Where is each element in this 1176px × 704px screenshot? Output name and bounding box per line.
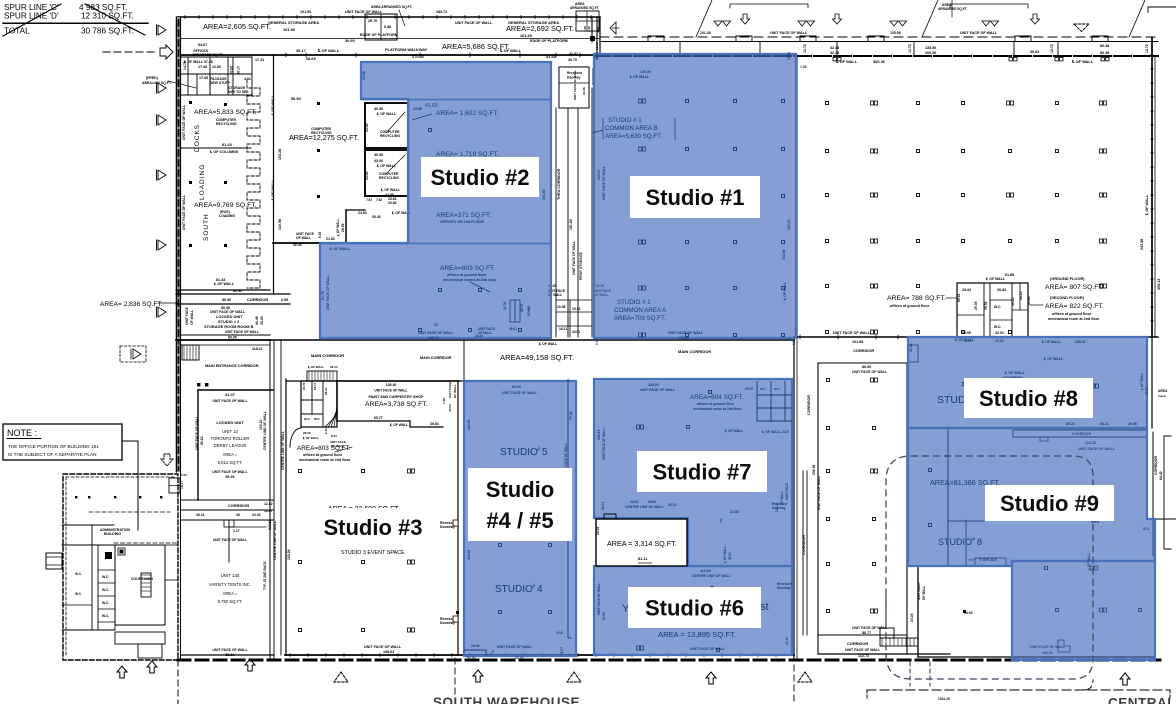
- svg-text:℄ OF WALL: ℄ OF WALL: [629, 74, 650, 79]
- svg-text:9,750 SQ.FT.: 9,750 SQ.FT.: [218, 599, 243, 604]
- svg-text:65.21: 65.21: [1100, 422, 1109, 426]
- svg-text:24.63: 24.63: [358, 211, 367, 215]
- svg-text:UNIT FACE OF WALL: UNIT FACE OF WALL: [195, 416, 199, 450]
- svg-text:TORONTO ROLLER: TORONTO ROLLER: [211, 436, 250, 441]
- svg-text:33.82: 33.82: [388, 201, 397, 205]
- svg-text:40.04: 40.04: [448, 404, 452, 412]
- svg-text:8: 8: [977, 537, 982, 547]
- svg-text:23.10: 23.10: [785, 637, 789, 645]
- svg-text:34.34: 34.34: [475, 334, 483, 338]
- svg-text:UNIT FACE OF WALL: UNIT FACE OF WALL: [817, 476, 821, 510]
- svg-text:AREA= 807 SQ.FT.: AREA= 807 SQ.FT.: [1045, 284, 1104, 291]
- svg-text:236.36: 236.36: [812, 465, 816, 475]
- svg-text:36.83: 36.83: [430, 422, 439, 426]
- svg-text:NEW STUFF: NEW STUFF: [210, 81, 230, 85]
- svg-text:64.42: 64.42: [1159, 471, 1163, 480]
- svg-text:103.27: 103.27: [597, 170, 601, 180]
- svg-text:15.17: 15.17: [180, 481, 184, 489]
- svg-text:305.13: 305.13: [1157, 279, 1161, 290]
- svg-text:UNIT FACE OF WALL: UNIT FACE OF WALL: [418, 331, 454, 335]
- svg-text:Studio #8: Studio #8: [979, 386, 1078, 411]
- svg-text:DERBY LEAGUE: DERBY LEAGUE: [214, 443, 247, 448]
- svg-text:12.28: 12.28: [595, 52, 599, 60]
- svg-text:7.28: 7.28: [442, 398, 446, 404]
- svg-text:PLATFORM WALKWAY: PLATFORM WALKWAY: [385, 47, 428, 52]
- svg-text:mech.: mech.: [1158, 394, 1167, 398]
- svg-text:32.33: 32.33: [830, 51, 839, 55]
- svg-text:UNIT FACE OF WALL: UNIT FACE OF WALL: [374, 389, 407, 393]
- svg-text:UNIT FACE OF WALL: UNIT FACE OF WALL: [345, 10, 383, 14]
- svg-text:UNIT FACE OF WALL: UNIT FACE OF WALL: [852, 370, 888, 374]
- svg-text:233.52: 233.52: [268, 520, 272, 530]
- svg-text:UNIT FACE: UNIT FACE: [185, 306, 189, 325]
- svg-text:50.40: 50.40: [372, 215, 381, 219]
- svg-text:CENTRE LINE OF WALL: CENTRE LINE OF WALL: [273, 521, 277, 560]
- svg-text:℄ OF WALL: ℄ OF WALL: [538, 342, 557, 346]
- svg-text:45.17: 45.17: [296, 48, 306, 53]
- svg-text:43.50: 43.50: [413, 107, 422, 111]
- svg-text:AREA=402 SQ.FT.: AREA=402 SQ.FT.: [142, 81, 172, 85]
- svg-text:℄ OF COLUMNS: ℄ OF COLUMNS: [209, 149, 239, 154]
- svg-text:℄ OF WALL: ℄ OF WALL: [1140, 373, 1144, 391]
- svg-text:AREA = 3,314 SQ.FT.: AREA = 3,314 SQ.FT.: [607, 539, 677, 548]
- svg-text:UNIT FACE OF WALL: UNIT FACE OF WALL: [573, 70, 577, 100]
- svg-text:31.98: 31.98: [582, 87, 586, 95]
- svg-text:101.88: 101.88: [852, 340, 863, 344]
- svg-text:℄ OF WALL: ℄ OF WALL: [329, 246, 351, 251]
- svg-text:21.83: 21.83: [326, 237, 335, 241]
- svg-text:CENTRAL: CENTRAL: [1108, 696, 1176, 704]
- svg-text:UNIT FACE OF WALL: UNIT FACE OF WALL: [213, 538, 247, 542]
- svg-text:25.70: 25.70: [368, 19, 377, 23]
- svg-text:9.16: 9.16: [556, 631, 563, 635]
- svg-text:GENERAL STORAGE AREA: GENERAL STORAGE AREA: [268, 20, 319, 25]
- svg-text:UNIT 13: UNIT 13: [222, 429, 238, 434]
- svg-text:23.03: 23.03: [910, 613, 914, 622]
- svg-text:45.80: 45.80: [1027, 296, 1031, 305]
- svg-text:AREA=803 SQ.FT.: AREA=803 SQ.FT.: [440, 265, 495, 272]
- svg-text:12.28: 12.28: [787, 52, 791, 60]
- svg-text:NOTE :: NOTE :: [7, 428, 37, 438]
- svg-text:40.50: 40.50: [374, 153, 383, 157]
- svg-text:5: 5: [542, 447, 548, 458]
- svg-text:112.72: 112.72: [858, 654, 869, 658]
- svg-text:℄ OF WALL: ℄ OF WALL: [380, 187, 401, 192]
- svg-text:℄ OF WALL: ℄ OF WALL: [270, 94, 275, 116]
- svg-text:EDGE OF PLATFORM: EDGE OF PLATFORM: [530, 39, 568, 43]
- svg-text:101.90: 101.90: [283, 27, 295, 32]
- svg-text:UNIT FACE OF WALL: UNIT FACE OF WALL: [668, 331, 704, 335]
- svg-text:MAIN ENTRANCE CORRIDOR: MAIN ENTRANCE CORRIDOR: [205, 364, 259, 368]
- svg-text:46.01: 46.01: [509, 327, 517, 331]
- svg-text:ARRANGED SQ.FT.: ARRANGED SQ.FT.: [938, 7, 967, 11]
- svg-text:7.62: 7.62: [376, 198, 382, 202]
- svg-text:183.72: 183.72: [436, 10, 447, 14]
- svg-text:105.41: 105.41: [1075, 340, 1086, 344]
- svg-text:(FRED): (FRED): [146, 76, 158, 80]
- svg-text:STUDIO: STUDIO: [500, 447, 538, 458]
- svg-text:8.73: 8.73: [331, 434, 337, 438]
- svg-text:28.10: 28.10: [324, 387, 328, 395]
- svg-text:25.44: 25.44: [229, 66, 233, 75]
- svg-text:20.83: 20.83: [997, 288, 1006, 292]
- svg-text:mechanical room at 2nd floor: mechanical room at 2nd floor: [1048, 317, 1100, 321]
- svg-text:158.63: 158.63: [383, 650, 394, 654]
- svg-text:UNIT FACE: UNIT FACE: [785, 483, 789, 500]
- svg-text:offices at ground floor: offices at ground floor: [303, 453, 343, 457]
- svg-text:MAIN CORRIDOR: MAIN CORRIDOR: [420, 356, 452, 360]
- svg-text:UNIT FACE OF WALL: UNIT FACE OF WALL: [770, 31, 808, 35]
- svg-text:OF WALL: OF WALL: [922, 586, 926, 600]
- svg-text:Doorway: Doorway: [772, 506, 786, 510]
- svg-text:23.02: 23.02: [962, 288, 971, 292]
- svg-text:17.08: 17.08: [198, 65, 207, 69]
- svg-text:Studio #2: Studio #2: [430, 165, 529, 190]
- svg-text:28.69: 28.69: [306, 56, 317, 61]
- svg-text:mechanical rooms at 2nd floor: mechanical rooms at 2nd floor: [443, 278, 497, 282]
- svg-text:25.17: 25.17: [313, 382, 317, 390]
- svg-text:32.02: 32.02: [252, 513, 261, 517]
- svg-text:UNIT FACE OF WALL: UNIT FACE OF WALL: [182, 194, 186, 230]
- svg-text:℄ OF WALL: ℄ OF WALL: [302, 436, 319, 440]
- svg-text:AREA=2,692 SQ.FT.: AREA=2,692 SQ.FT.: [506, 24, 574, 33]
- svg-text:THE OFFICE PORTION OF BUIL: THE OFFICE PORTION OF BUILDING 151: [8, 444, 99, 449]
- svg-text:LOADING: LOADING: [219, 214, 235, 218]
- svg-text:103.10: 103.10: [259, 420, 263, 430]
- svg-text:UNIT FACE OF WALL: UNIT FACE OF WALL: [690, 647, 726, 651]
- svg-text:0.30: 0.30: [181, 473, 187, 477]
- svg-text:Studio #7: Studio #7: [652, 459, 751, 484]
- svg-text:110.98: 110.98: [278, 219, 282, 230]
- svg-text:mechanical room at 2nd floor: mechanical room at 2nd floor: [693, 407, 742, 411]
- svg-text:COMMON AREA A: COMMON AREA A: [614, 307, 667, 314]
- svg-text:PAINT AND CARPENTRY SHOP: PAINT AND CARPENTRY SHOP: [369, 395, 424, 399]
- svg-text:12.72: 12.72: [1050, 44, 1054, 53]
- svg-text:28.33: 28.33: [303, 431, 311, 435]
- svg-text:CORRIDOR: CORRIDOR: [807, 395, 811, 415]
- svg-text:OF WALL: OF WALL: [296, 236, 311, 240]
- svg-text:29.35: 29.35: [974, 301, 978, 310]
- svg-text:W.C.: W.C.: [75, 592, 82, 596]
- svg-text:UNIT FACE OF WALL: UNIT FACE OF WALL: [326, 276, 330, 310]
- svg-text:6.35: 6.35: [318, 232, 322, 238]
- svg-text:86.00: 86.00: [862, 365, 871, 369]
- svg-text:UNIT FACE: UNIT FACE: [448, 382, 452, 398]
- svg-text:UNIT FACE OF WALL: UNIT FACE OF WALL: [212, 470, 248, 474]
- svg-text:AREA= 2,836 SQ.FT.: AREA= 2,836 SQ.FT.: [100, 301, 163, 308]
- svg-text:33.05: 33.05: [962, 331, 971, 335]
- svg-text:SOUTH: SOUTH: [203, 213, 210, 241]
- svg-text:℄ OF WALL: ℄ OF WALL: [1144, 194, 1149, 216]
- svg-text:℄ OF WALL: ℄ OF WALL: [954, 337, 975, 342]
- svg-text:℄ OF WALL: ℄ OF WALL: [1004, 370, 1026, 375]
- svg-text:(SECOND FLOOR): (SECOND FLOOR): [1050, 295, 1085, 300]
- svg-text:103.28: 103.28: [287, 550, 291, 560]
- svg-text:AREA= 1,602 SQ.FT.: AREA= 1,602 SQ.FT.: [436, 110, 499, 117]
- svg-text:32.02: 32.02: [995, 331, 1004, 335]
- svg-text:0.35: 0.35: [595, 339, 599, 345]
- svg-text:17.31: 17.31: [255, 58, 264, 62]
- svg-text:32.33: 32.33: [830, 46, 839, 50]
- svg-text:19.96: 19.96: [557, 305, 566, 309]
- svg-text:15.09: 15.09: [471, 644, 480, 648]
- svg-text:mechanical room at 2nd floor: mechanical room at 2nd floor: [299, 458, 351, 462]
- svg-text:31.3: 31.3: [1143, 527, 1149, 531]
- svg-text:13.87: 13.87: [264, 509, 273, 513]
- svg-text:SPUR LINE 'D': SPUR LINE 'D': [4, 12, 59, 21]
- svg-text:36: 36: [236, 513, 240, 517]
- svg-text:12.72: 12.72: [1145, 44, 1149, 53]
- svg-text:RECYCLING: RECYCLING: [379, 176, 399, 180]
- svg-text:201.38: 201.38: [700, 31, 711, 35]
- svg-text:UNIT FACE OF WALL: UNIT FACE OF WALL: [212, 399, 248, 403]
- svg-text:W.C.: W.C.: [102, 588, 109, 592]
- svg-text:OFFICES ON 2nd FLOOR: OFFICES ON 2nd FLOOR: [440, 220, 484, 224]
- svg-text:4: 4: [537, 584, 543, 595]
- svg-text:AREA= 1,718 SQ.FT.: AREA= 1,718 SQ.FT.: [436, 151, 499, 158]
- svg-text:181.80: 181.80: [569, 219, 573, 230]
- svg-text:UNIT FACE OF WALL: UNIT FACE OF WALL: [502, 391, 538, 395]
- svg-text:℄ OF WALL: ℄ OF WALL: [270, 179, 275, 201]
- svg-text:12.80: 12.80: [212, 65, 221, 69]
- svg-text:1041.26: 1041.26: [938, 697, 950, 701]
- svg-text:SOUTH WAREHOUSE: SOUTH WAREHOUSE: [433, 695, 580, 704]
- svg-text:118.21: 118.21: [252, 347, 263, 351]
- svg-text:IS THE SUBJECT OF A SEPAR: IS THE SUBJECT OF A SEPARATE PLAN: [8, 452, 96, 457]
- svg-text:50.90: 50.90: [291, 96, 301, 101]
- svg-text:86.77: 86.77: [862, 631, 871, 635]
- svg-text:116.98: 116.98: [467, 550, 471, 560]
- svg-text:UNIT FACE OF WALL: UNIT FACE OF WALL: [212, 648, 248, 652]
- svg-text:43.06: 43.06: [374, 159, 383, 163]
- svg-text:101.90: 101.90: [300, 10, 311, 14]
- svg-text:28.70: 28.70: [520, 304, 524, 312]
- svg-text:38.91: 38.91: [728, 552, 732, 560]
- svg-text:33.00: 33.00: [515, 656, 524, 660]
- svg-text:28.43: 28.43: [330, 365, 338, 369]
- svg-text:80.90: 80.90: [222, 298, 231, 302]
- svg-text:CORRIDOR: CORRIDOR: [1154, 455, 1158, 475]
- svg-text:135.56: 135.56: [890, 31, 901, 35]
- svg-text:BUILDING: BUILDING: [104, 532, 121, 536]
- svg-text:36.04: 36.04: [601, 502, 605, 510]
- svg-text:℄ OF WALL: ℄ OF WALL: [985, 276, 1006, 281]
- svg-text:75.36: 75.36: [569, 411, 573, 420]
- svg-text:offices at ground floor: offices at ground floor: [1052, 312, 1092, 316]
- svg-text:(GROUND FLOOR): (GROUND FLOOR): [1050, 276, 1085, 281]
- svg-text:12.72: 12.72: [908, 44, 912, 53]
- svg-text:17.08: 17.08: [236, 66, 240, 75]
- svg-text:61.07: 61.07: [225, 392, 235, 397]
- svg-text:ARRANGED SQ.FT.: ARRANGED SQ.FT.: [570, 6, 599, 10]
- svg-text:RECYCLING: RECYCLING: [380, 134, 400, 138]
- svg-text:Studio #1: Studio #1: [645, 185, 744, 210]
- svg-text:LOADING: LOADING: [199, 164, 206, 200]
- svg-text:STUDIO # 1: STUDIO # 1: [617, 299, 651, 306]
- svg-text:STUDIO # 1: STUDIO # 1: [608, 117, 642, 124]
- svg-text:6,014 SQ.FT.: 6,014 SQ.FT.: [218, 460, 243, 465]
- svg-text:W.C.: W.C.: [102, 575, 109, 579]
- svg-text:CENTRE LINE OF WALL: CENTRE LINE OF WALL: [625, 505, 664, 509]
- svg-text:25.37: 25.37: [745, 387, 754, 391]
- svg-text:UNIT FACE OF WALL: UNIT FACE OF WALL: [225, 330, 259, 334]
- svg-text:UNIT FACE OF WALL: UNIT FACE OF WALL: [833, 331, 871, 335]
- svg-text:UNIT FACE OF WALL: UNIT FACE OF WALL: [597, 583, 601, 615]
- svg-text:UNIT 140: UNIT 140: [221, 573, 240, 578]
- svg-text:AREA=803 SQ.FT.: AREA=803 SQ.FT.: [297, 445, 351, 452]
- svg-text:160.73: 160.73: [428, 336, 439, 340]
- svg-text:300.36: 300.36: [873, 59, 886, 64]
- svg-text:34.01: 34.01: [572, 330, 580, 334]
- svg-text:7.67: 7.67: [366, 198, 372, 202]
- svg-text:40.35: 40.35: [293, 243, 302, 247]
- svg-text:65.77: 65.77: [374, 416, 383, 420]
- svg-text:AREA =: AREA =: [223, 452, 238, 457]
- svg-text:17.69: 17.69: [199, 76, 208, 80]
- svg-text:℄ OF WALL: ℄ OF WALL: [336, 219, 340, 237]
- svg-text:161.60: 161.60: [520, 33, 532, 38]
- svg-text:℄ OF WALL: ℄ OF WALL: [499, 48, 522, 53]
- svg-text:W.C.: W.C.: [760, 387, 767, 391]
- svg-text:20.70: 20.70: [302, 382, 306, 390]
- svg-text:80.90: 80.90: [233, 289, 242, 293]
- svg-text:STUDIO 3 EVENT SPACE: STUDIO 3 EVENT SPACE: [341, 550, 405, 556]
- svg-text:ARRANGED SQ.FT.: ARRANGED SQ.FT.: [192, 53, 223, 57]
- svg-text:CORRIDOR: CORRIDOR: [847, 641, 868, 646]
- svg-text:W.C.: W.C.: [304, 417, 311, 421]
- svg-text:113.00: 113.00: [700, 569, 711, 573]
- svg-text:21.33: 21.33: [909, 343, 913, 352]
- svg-text:STUDIO: STUDIO: [938, 537, 972, 547]
- svg-text:12.72: 12.72: [803, 44, 807, 53]
- svg-text:AREA= 788 SQ.FT.: AREA= 788 SQ.FT.: [887, 295, 946, 302]
- svg-text:1.17: 1.17: [233, 529, 240, 533]
- svg-text:63.00: 63.00: [512, 385, 521, 389]
- svg-text:℄ OF WALL: ℄ OF WALL: [1087, 553, 1091, 571]
- svg-text:55.39: 55.39: [225, 475, 234, 479]
- svg-text:W.C.: W.C.: [314, 417, 321, 421]
- svg-text:VARSITY TENTS INC.: VARSITY TENTS INC.: [209, 582, 251, 587]
- svg-text:232.89: 232.89: [782, 250, 786, 260]
- svg-text:st: st: [760, 601, 769, 613]
- svg-text:81.43: 81.43: [222, 142, 233, 147]
- svg-text:℄ OF WALL: ℄ OF WALL: [783, 282, 787, 301]
- svg-text:28.56: 28.56: [341, 223, 345, 232]
- svg-text:AREA=5,630 SQ.FT.: AREA=5,630 SQ.FT.: [605, 133, 662, 140]
- svg-text:UNIT FACE OF WALL: UNIT FACE OF WALL: [572, 241, 576, 275]
- svg-text:84.15: 84.15: [668, 503, 677, 507]
- svg-text:243.98: 243.98: [1140, 239, 1144, 250]
- svg-text:39.10: 39.10: [1011, 297, 1015, 306]
- svg-text:UNIT FACE OF WALL: UNIT FACE OF WALL: [602, 428, 606, 460]
- svg-text:℄ OF WALL: ℄ OF WALL: [835, 59, 858, 64]
- svg-text:16.21: 16.21: [559, 327, 567, 331]
- svg-text:28.10: 28.10: [1019, 291, 1023, 300]
- svg-text:RECYCLING: RECYCLING: [311, 131, 332, 135]
- svg-text:℄ OF WALL: ℄ OF WALL: [376, 111, 397, 116]
- svg-text:80.38: 80.38: [1100, 51, 1109, 55]
- svg-text:36.11: 36.11: [196, 513, 205, 517]
- svg-text:CORRIDOR: CORRIDOR: [247, 297, 268, 302]
- svg-text:STUDIO: STUDIO: [495, 584, 533, 595]
- svg-text:AREA= 822 SQ.FT.: AREA= 822 SQ.FT.: [1045, 303, 1104, 310]
- svg-text:14.75: 14.75: [183, 61, 187, 70]
- svg-text:THRU CORRIDOR: THRU CORRIDOR: [557, 168, 561, 200]
- svg-text:41.50: 41.50: [425, 103, 438, 109]
- svg-text:offices at ground floor: offices at ground floor: [447, 273, 487, 277]
- svg-text:℄ OF WALL: ℄ OF WALL: [389, 423, 408, 427]
- svg-text:W.C.: W.C.: [102, 601, 109, 605]
- svg-text:AREA =: AREA =: [223, 591, 238, 596]
- svg-text:77.31: 77.31: [1145, 387, 1149, 395]
- svg-text:122.00: 122.00: [467, 420, 471, 430]
- svg-text:AREA=371 SQ.FT.: AREA=371 SQ.FT.: [436, 212, 491, 219]
- svg-text:CORRIDOR: CORRIDOR: [228, 503, 249, 508]
- svg-text:Studio #9: Studio #9: [1000, 491, 1099, 516]
- svg-text:offices at ground floor: offices at ground floor: [890, 304, 930, 308]
- svg-text:81.79: 81.79: [321, 291, 325, 300]
- svg-text:80.24: 80.24: [200, 436, 204, 445]
- svg-text:AREA=3,738 SQ.FT.: AREA=3,738 SQ.FT.: [365, 401, 428, 408]
- svg-text:33.59: 33.59: [362, 71, 366, 80]
- svg-text:AREA=2,605 SQ.FT.: AREA=2,605 SQ.FT.: [203, 22, 271, 31]
- svg-text:LOCKED UNIT: LOCKED UNIT: [216, 420, 244, 425]
- svg-text:℄ OF WALL: ℄ OF WALL: [376, 163, 397, 168]
- svg-text:85.21: 85.21: [1066, 422, 1075, 426]
- svg-text:40.50: 40.50: [374, 107, 383, 111]
- svg-text:GENERAL STORAGE AREA: GENERAL STORAGE AREA: [508, 20, 559, 25]
- svg-text:Studio: Studio: [486, 477, 554, 502]
- svg-text:UNIT FACE OF WALL: UNIT FACE OF WALL: [960, 31, 998, 35]
- svg-text:AREA=709 SQ.FT.: AREA=709 SQ.FT.: [614, 315, 666, 322]
- svg-text:MAY TO SEE: MAY TO SEE: [228, 90, 249, 94]
- svg-text:16.01: 16.01: [596, 526, 600, 535]
- svg-text:℄ OF WALL: ℄ OF WALL: [1041, 339, 1062, 344]
- svg-text:EDGE OF PLATFORM: EDGE OF PLATFORM: [360, 33, 398, 37]
- svg-text:61.88: 61.88: [1005, 273, 1014, 277]
- svg-text:OF WALL: OF WALL: [190, 310, 194, 325]
- svg-text:19.53: 19.53: [572, 307, 581, 311]
- svg-text:℄ OF WALL 47.45: ℄ OF WALL 47.45: [183, 59, 213, 64]
- svg-text:103.28: 103.28: [278, 149, 282, 160]
- svg-text:43.00: 43.00: [365, 171, 369, 180]
- svg-text:30.78: 30.78: [503, 302, 507, 310]
- svg-text:CORRIDOR: CORRIDOR: [853, 348, 874, 353]
- svg-text:1.13: 1.13: [324, 428, 328, 434]
- svg-text:1.91: 1.91: [792, 339, 796, 345]
- svg-text:AREA = 13,895 SQ.FT.: AREA = 13,895 SQ.FT.: [658, 630, 736, 639]
- svg-text:℄ OF WALL: ℄ OF WALL: [1071, 59, 1094, 64]
- svg-text:35.00: 35.00: [260, 316, 264, 325]
- svg-text:℄ OF WALL: ℄ OF WALL: [724, 429, 743, 433]
- svg-text:CORRIDOR: CORRIDOR: [802, 535, 806, 555]
- svg-text:AREA=49,158 SQ.FT.: AREA=49,158 SQ.FT.: [500, 353, 574, 362]
- svg-text:81.43: 81.43: [216, 278, 225, 282]
- svg-text:℄ OF WALL: ℄ OF WALL: [1043, 356, 1064, 361]
- svg-text:CENTRE LINE OF WALL: CENTRE LINE OF WALL: [281, 431, 285, 470]
- svg-text:W.C.: W.C.: [75, 572, 82, 576]
- svg-text:80.38: 80.38: [1100, 44, 1109, 48]
- svg-text:103.27: 103.27: [597, 430, 601, 440]
- svg-text:30 786 SQ.FT.: 30 786 SQ.FT.: [81, 27, 134, 36]
- svg-text:170.02: 170.02: [412, 54, 425, 59]
- svg-text:UNIT FACE OF WALL: UNIT FACE OF WALL: [602, 166, 606, 200]
- svg-text:32.33: 32.33: [595, 42, 599, 50]
- svg-text:TYP. AT 2ND BACK: TYP. AT 2ND BACK: [263, 560, 267, 590]
- svg-text:℄ OF WALL: ℄ OF WALL: [307, 365, 324, 369]
- svg-text:39.30: 39.30: [984, 301, 988, 310]
- svg-text:W.C.: W.C.: [994, 325, 1001, 329]
